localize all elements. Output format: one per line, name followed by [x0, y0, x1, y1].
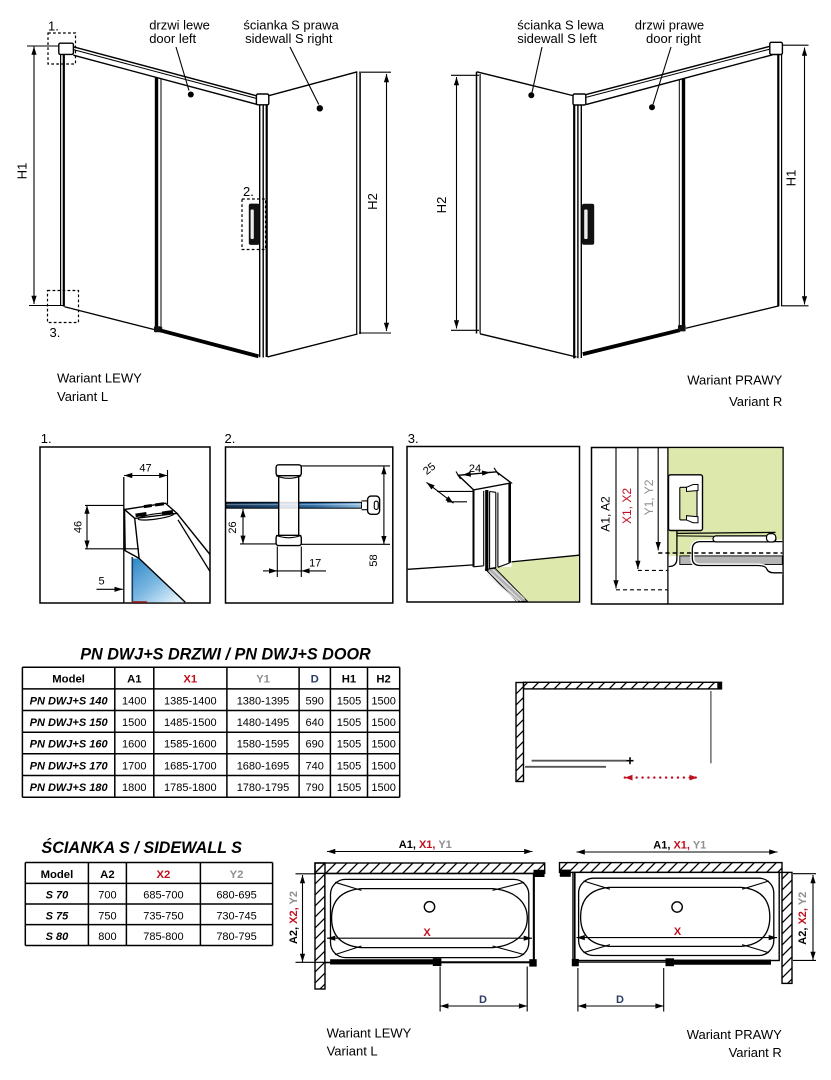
svg-text:1480-1495: 1480-1495: [237, 717, 290, 729]
svg-text:Variant R: Variant R: [729, 1045, 782, 1060]
svg-text:door right: door right: [646, 31, 701, 46]
svg-text:S 75: S 75: [46, 910, 70, 922]
svg-text:700: 700: [98, 890, 116, 902]
svg-text:D: D: [616, 994, 624, 1006]
svg-text:58: 58: [368, 554, 380, 566]
svg-text:X2: X2: [156, 869, 170, 881]
svg-text:Wariant LEWY: Wariant LEWY: [57, 371, 142, 386]
svg-text:Wariant LEWY: Wariant LEWY: [327, 1026, 412, 1041]
svg-text:H2: H2: [434, 197, 449, 214]
svg-text:640: 640: [306, 717, 324, 729]
svg-text:690: 690: [306, 739, 324, 751]
svg-text:sidewall S right: sidewall S right: [245, 31, 333, 46]
svg-text:X1: X1: [183, 674, 197, 686]
svg-text:1.: 1.: [41, 431, 52, 446]
svg-text:Y1: Y1: [256, 674, 270, 686]
svg-text:Wariant PRAWY: Wariant PRAWY: [687, 1027, 782, 1042]
svg-text:H1: H1: [15, 163, 30, 180]
svg-text:1500: 1500: [371, 717, 395, 729]
svg-text:X: X: [674, 926, 682, 938]
svg-text:A1, A2: A1, A2: [599, 496, 613, 532]
svg-text:1380-1395: 1380-1395: [237, 695, 290, 707]
svg-text:1680-1695: 1680-1695: [237, 760, 290, 772]
svg-text:A1: A1: [127, 674, 141, 686]
svg-text:A1, X1, Y1: A1, X1, Y1: [399, 839, 452, 851]
svg-text:1505: 1505: [337, 739, 361, 751]
svg-text:1800: 1800: [122, 782, 146, 794]
svg-text:1600: 1600: [122, 739, 146, 751]
svg-text:Variant L: Variant L: [57, 389, 108, 404]
svg-text:A2: A2: [100, 869, 114, 881]
svg-text:780-795: 780-795: [216, 931, 256, 943]
svg-text:46: 46: [73, 521, 85, 533]
svg-text:sidewall S left: sidewall S left: [517, 31, 597, 46]
svg-text:ŚCIANKA S / SIDEWALL S: ŚCIANKA S / SIDEWALL S: [41, 838, 242, 857]
svg-text:800: 800: [98, 931, 116, 943]
svg-text:1685-1700: 1685-1700: [164, 760, 217, 772]
svg-text:PN DWJ+S 180: PN DWJ+S 180: [30, 782, 109, 794]
svg-text:PN DWJ+S 140: PN DWJ+S 140: [30, 695, 109, 707]
svg-text:47: 47: [139, 463, 151, 475]
svg-text:26: 26: [227, 521, 239, 533]
svg-text:1500: 1500: [371, 695, 395, 707]
svg-text:740: 740: [306, 760, 324, 772]
svg-text:Wariant PRAWY: Wariant PRAWY: [687, 373, 782, 388]
svg-text:A1, X1, Y1: A1, X1, Y1: [653, 840, 706, 852]
svg-text:3.: 3.: [408, 431, 419, 446]
svg-text:590: 590: [306, 695, 324, 707]
svg-text:730-745: 730-745: [216, 910, 256, 922]
svg-text:685-700: 685-700: [143, 890, 183, 902]
svg-text:1385-1400: 1385-1400: [164, 695, 217, 707]
svg-text:680-695: 680-695: [216, 890, 256, 902]
svg-text:1500: 1500: [371, 739, 395, 751]
svg-text:1400: 1400: [122, 695, 146, 707]
svg-text:750: 750: [98, 910, 116, 922]
svg-text:S 70: S 70: [46, 890, 70, 902]
svg-text:1785-1800: 1785-1800: [164, 782, 217, 794]
svg-text:1500: 1500: [371, 760, 395, 772]
svg-text:1500: 1500: [122, 717, 146, 729]
svg-text:735-750: 735-750: [143, 910, 183, 922]
svg-text:1780-1795: 1780-1795: [237, 782, 290, 794]
svg-text:H1: H1: [784, 170, 799, 187]
svg-text:1.: 1.: [48, 19, 59, 34]
svg-text:24: 24: [469, 463, 481, 475]
svg-text:1585-1600: 1585-1600: [164, 739, 217, 751]
svg-text:2.: 2.: [243, 184, 254, 199]
svg-text:1485-1500: 1485-1500: [164, 717, 217, 729]
svg-text:1505: 1505: [337, 760, 361, 772]
svg-text:5: 5: [98, 576, 104, 588]
svg-text:PN DWJ+S 150: PN DWJ+S 150: [30, 717, 109, 729]
svg-text:Model: Model: [41, 869, 74, 881]
svg-text:PN DWJ+S DRZWI / PN DWJ+S DOOR: PN DWJ+S DRZWI / PN DWJ+S DOOR: [80, 646, 371, 664]
svg-text:3.: 3.: [50, 325, 61, 340]
svg-text:A2, X2, Y2: A2, X2, Y2: [797, 892, 809, 945]
svg-text:785-800: 785-800: [143, 931, 183, 943]
svg-text:D: D: [311, 674, 319, 686]
svg-text:Variant R: Variant R: [729, 394, 782, 409]
svg-text:D: D: [479, 994, 487, 1006]
svg-text:X: X: [423, 927, 431, 939]
svg-text:A2, X2, Y2: A2, X2, Y2: [288, 891, 300, 944]
svg-text:S 80: S 80: [46, 931, 70, 943]
svg-text:1505: 1505: [337, 782, 361, 794]
svg-text:H1: H1: [342, 674, 356, 686]
svg-text:X1, X2: X1, X2: [620, 488, 634, 524]
svg-text:2.: 2.: [225, 431, 236, 446]
svg-text:1700: 1700: [122, 760, 146, 772]
svg-text:Y1, Y2: Y1, Y2: [642, 479, 656, 515]
svg-text:1500: 1500: [371, 782, 395, 794]
svg-text:Variant L: Variant L: [327, 1044, 378, 1059]
svg-text:door left: door left: [149, 31, 196, 46]
svg-text:PN DWJ+S 170: PN DWJ+S 170: [30, 760, 109, 772]
svg-text:PN DWJ+S 160: PN DWJ+S 160: [30, 739, 109, 751]
svg-text:1580-1595: 1580-1595: [237, 739, 290, 751]
svg-text:1505: 1505: [337, 717, 361, 729]
svg-text:Model: Model: [52, 674, 85, 686]
svg-text:790: 790: [306, 782, 324, 794]
svg-text:Y2: Y2: [230, 869, 244, 881]
svg-text:17: 17: [309, 558, 321, 570]
svg-text:H2: H2: [376, 674, 390, 686]
svg-text:1505: 1505: [337, 695, 361, 707]
svg-text:H2: H2: [365, 193, 380, 210]
